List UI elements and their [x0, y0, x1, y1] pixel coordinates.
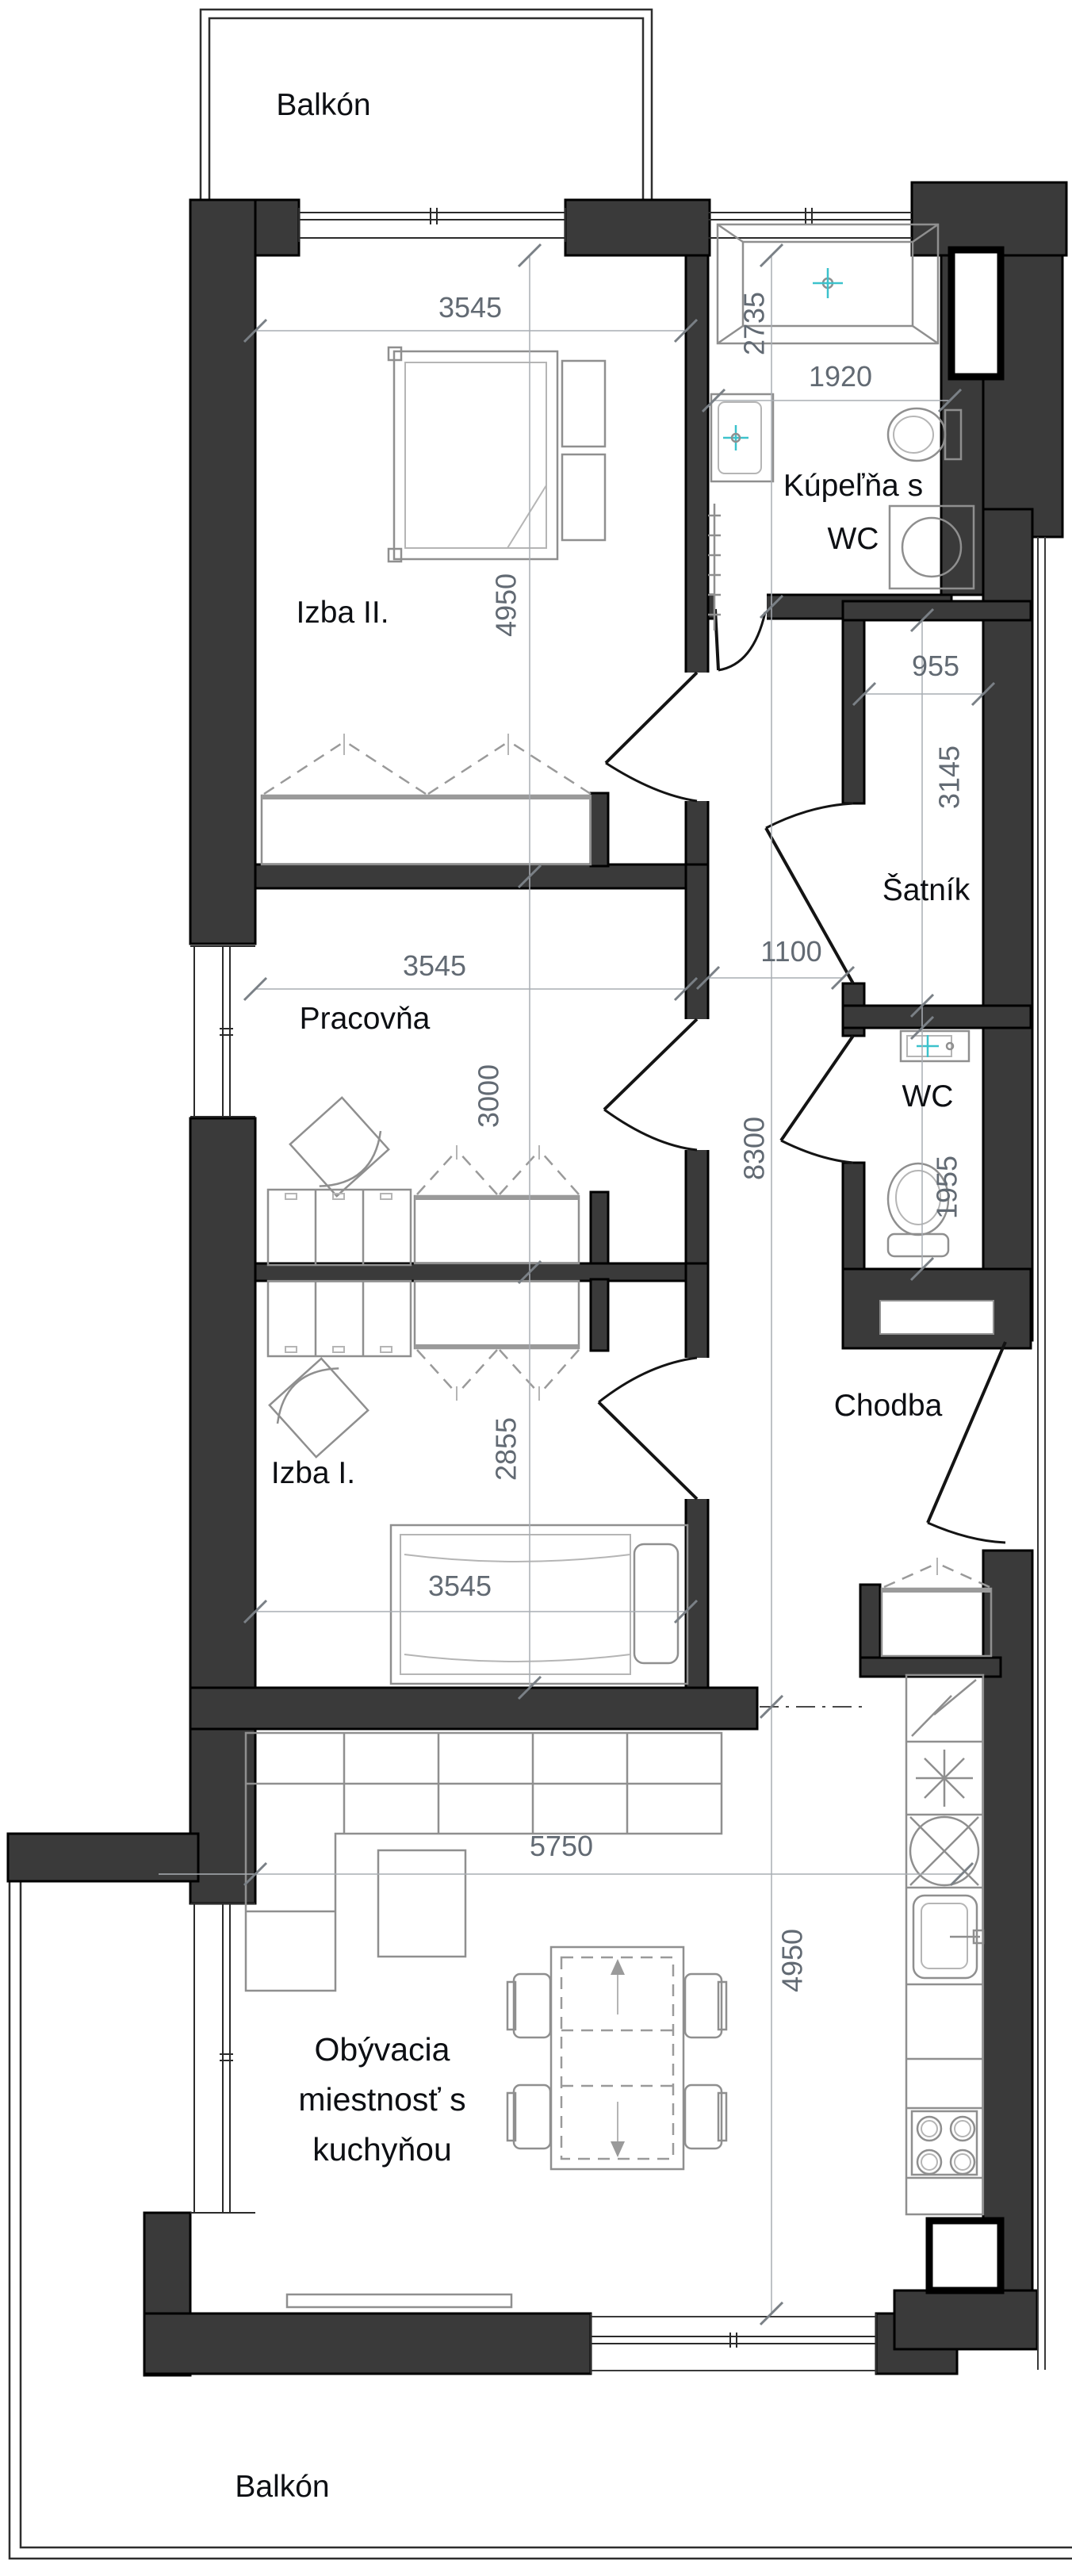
room-label-wc: WC	[902, 1079, 954, 1114]
dim-kupelna-width: 1920	[809, 360, 872, 393]
dim-kupelna-height: 2735	[738, 292, 771, 355]
dim-wc-height: 1955	[931, 1156, 963, 1219]
dim-izba2-height: 4950	[490, 573, 523, 637]
room-label-satnik: Šatník	[882, 872, 971, 907]
wall-niche	[880, 1301, 994, 1334]
room-label-balkon-top: Balkón	[276, 88, 370, 122]
room-label-pracovna: Pracovňa	[300, 1002, 431, 1036]
door-opening-kupelna	[714, 593, 767, 620]
shaft-bottom	[929, 2221, 1001, 2290]
door-opening-izba1	[684, 1358, 710, 1499]
room-label-izba1: Izba I.	[271, 1456, 355, 1490]
door-opening-pracovna	[684, 1019, 710, 1150]
room-label-kupelna-line1: Kúpeľňa s	[783, 469, 923, 503]
dim-pracovna-width: 3545	[403, 949, 466, 982]
room-label-kupelna-line2: WC	[828, 522, 879, 556]
room-label-obyvacia-line2: miestnosť s	[298, 2081, 465, 2118]
room-label-chodba: Chodba	[834, 1389, 943, 1423]
floor-plan-page: 3545 1920 955 3545 1100 3545 5750 2735 4…	[0, 0, 1072, 2576]
dim-obyvacia-height: 4950	[776, 1929, 809, 1992]
dim-izba1-width: 3545	[428, 1570, 492, 1602]
floor-plan-svg: 3545 1920 955 3545 1100 3545 5750 2735 4…	[0, 0, 1072, 2576]
dim-izba2-width: 3545	[438, 291, 502, 324]
room-label-obyvacia-line1: Obývacia	[315, 2031, 450, 2068]
dim-izba1-height: 2855	[490, 1417, 523, 1481]
door-opening-izba2	[684, 673, 710, 801]
room-label-obyvacia-line3: kuchyňou	[312, 2131, 452, 2168]
dim-pracovna-height: 3000	[473, 1064, 505, 1128]
dim-obyvacia-width: 5750	[530, 1830, 593, 1862]
shaft-top	[951, 250, 1001, 377]
room-label-balkon-bottom: Balkón	[235, 2470, 329, 2504]
dim-satnik-width: 955	[912, 650, 959, 682]
dim-satnik-height: 3145	[933, 746, 966, 809]
dim-chodba-width: 1100	[760, 935, 821, 968]
room-label-izba2: Izba II.	[296, 596, 389, 630]
dim-chodba-height: 8300	[738, 1117, 771, 1180]
